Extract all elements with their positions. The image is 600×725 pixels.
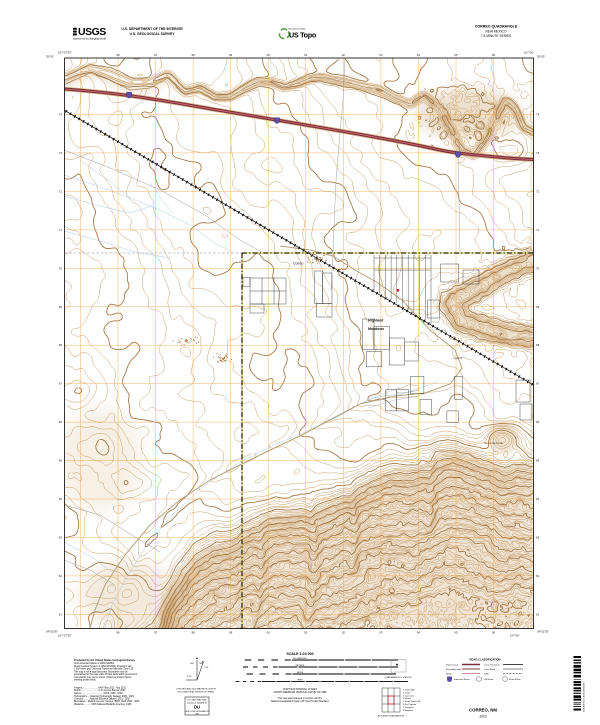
svg-text:34°52′30″: 34°52′30″ [537, 630, 549, 634]
svg-text:US Topo: US Topo [289, 31, 317, 40]
svg-text:Mesa Redondo: Mesa Redondo [484, 441, 503, 445]
svg-text:NORTH AMERICAN VERTICAL DATUM: NORTH AMERICAN VERTICAL DATUM OF 1988 [274, 691, 327, 694]
svg-text:35°00′: 35°00′ [46, 55, 54, 59]
svg-text:63: 63 [59, 536, 63, 540]
svg-text:00: 00 [267, 631, 271, 635]
svg-text:CORREO QUADRANGLE: CORREO QUADRANGLE [475, 24, 518, 28]
svg-text:66: 66 [536, 420, 540, 424]
svg-text:This map was produced to confo: This map was produced to conform with th… [278, 697, 323, 700]
svg-text:QUADRANGLE LOCATION: QUADRANGLE LOCATION [385, 676, 412, 679]
svg-text:00: 00 [267, 53, 271, 57]
svg-text:98: 98 [191, 53, 195, 57]
svg-text:0°19′: 0°19′ [187, 676, 192, 678]
svg-text:US Route: US Route [484, 678, 494, 681]
svg-text:34°52′30″: 34°52′30″ [46, 630, 58, 634]
svg-text:GN: GN [190, 663, 194, 665]
svg-text:4 Mesita: 4 Mesita [403, 697, 412, 700]
svg-text:Correo: Correo [293, 262, 303, 266]
svg-text:Secondary Hwy: Secondary Hwy [446, 668, 462, 671]
svg-text:6 Rio Paguate: 6 Rio Paguate [403, 703, 417, 706]
svg-text:67: 67 [536, 382, 540, 386]
svg-text:Produced by the United States: Produced by the United States Geological… [74, 658, 136, 662]
svg-text:61: 61 [536, 612, 540, 616]
svg-text:7°41′: 7°41′ [204, 667, 209, 669]
svg-text:SCALE 1:24 000: SCALE 1:24 000 [286, 652, 313, 656]
svg-text:13S: 13S [195, 713, 199, 715]
svg-text:107°00′: 107°00′ [510, 634, 520, 638]
svg-text:generalized for this map scale: generalized for this map scale. Private … [74, 673, 137, 676]
svg-text:entering private lands.: entering private lands. [74, 679, 97, 682]
svg-text:73: 73 [536, 151, 540, 155]
svg-text:03: 03 [379, 631, 383, 635]
svg-text:65: 65 [59, 459, 63, 463]
svg-text:reservations may not be shown.: reservations may not be shown. Obtain pe… [74, 676, 132, 679]
svg-text:70: 70 [536, 266, 540, 270]
svg-text:FEET: FEET [297, 679, 303, 681]
svg-text:4WD: 4WD [484, 673, 489, 675]
svg-text:04: 04 [417, 631, 421, 635]
svg-text:99: 99 [229, 53, 233, 57]
svg-text:CORREO, NM: CORREO, NM [469, 708, 497, 713]
svg-text:DU: DU [194, 705, 200, 710]
svg-text:107°00′: 107°00′ [524, 51, 534, 55]
svg-text:KILOMETERS: KILOMETERS [293, 658, 307, 660]
svg-text:5 South Garcia SE: 5 South Garcia SE [403, 700, 421, 703]
svg-text:Names.........................: Names...................................… [74, 693, 123, 695]
svg-text:World Geodetic System of 1984: World Geodetic System of 1984 (WGS84). P… [74, 665, 132, 668]
svg-text:North American Datum of 1983 (: North American Datum of 1983 (NAD83) [74, 662, 115, 665]
svg-text:65: 65 [536, 459, 540, 463]
svg-text:Highland: Highland [368, 319, 383, 323]
svg-text:Wetlands.............FWS Natio: Wetlands.............FWS National Wetlan… [74, 703, 132, 706]
svg-text:Local Connector: Local Connector [484, 663, 500, 666]
svg-text:1 000-meter grid: Universal Tr: 1 000-meter grid: Universal Transverse M… [74, 668, 134, 671]
svg-text:71: 71 [536, 228, 540, 232]
svg-text:U.S. DEPARTMENT OF THE INTERIO: U.S. DEPARTMENT OF THE INTERIOR [121, 27, 183, 31]
svg-text:NEW MEXICO: NEW MEXICO [486, 29, 507, 33]
svg-text:68: 68 [536, 343, 540, 347]
svg-text:NGA REF NO. USGSX24K00000: NGA REF NO. USGSX24K00000 [583, 682, 586, 712]
svg-text:2023: 2023 [479, 715, 486, 719]
svg-text:05: 05 [454, 631, 458, 635]
svg-text:06: 06 [492, 631, 496, 635]
svg-text:72: 72 [59, 189, 63, 193]
svg-text:96: 96 [116, 53, 120, 57]
svg-text:Roads.........................: Roads.............................U.S. C… [74, 689, 126, 692]
svg-text:8 Moquino: 8 Moquino [403, 710, 414, 712]
svg-text:7.5-MINUTE SERIES: 7.5-MINUTE SERIES [481, 34, 511, 38]
svg-text:Hydrography......National Hydr: Hydrography......National Hydrography Da… [74, 695, 135, 698]
svg-text:Meadows: Meadows [368, 327, 384, 331]
svg-text:97: 97 [154, 53, 158, 57]
svg-text:U.S. NATIONAL GRID: U.S. NATIONAL GRID [187, 699, 207, 702]
svg-text:97: 97 [154, 631, 158, 635]
svg-text:01: 01 [304, 53, 308, 57]
svg-text:National Geospatial Program US: National Geospatial Program US Topo Prod… [271, 700, 329, 703]
svg-text:State Route: State Route [509, 678, 521, 681]
svg-text:74: 74 [536, 113, 540, 117]
svg-text:7 Seboyeta: 7 Seboyeta [403, 706, 414, 709]
svg-text:UTM GRID AND 2023 MAGNETIC NOR: UTM GRID AND 2023 MAGNETIC NORTH [176, 688, 216, 691]
svg-text:Contours...........National El: Contours...........National Elevation Da… [74, 698, 131, 701]
svg-text:ADJOINING QUADRANGLES: ADJOINING QUADRANGLES [378, 715, 405, 718]
svg-text:03: 03 [379, 53, 383, 57]
svg-text:This map is not a legal docume: This map is not a legal document. Bounda… [74, 671, 128, 674]
svg-text:69: 69 [59, 305, 63, 309]
svg-text:1 Dalies NW: 1 Dalies NW [403, 690, 415, 692]
svg-text:MN: MN [200, 663, 204, 665]
svg-text:Boundaries....Multiple sources: Boundaries....Multiple sources; Census, … [74, 700, 140, 703]
svg-text:Laguna: Laguna [453, 356, 463, 360]
svg-text:04: 04 [417, 53, 421, 57]
svg-text:70: 70 [59, 266, 63, 270]
svg-text:62: 62 [536, 574, 540, 578]
svg-text:71: 71 [59, 228, 63, 232]
svg-text:Expressway: Expressway [446, 663, 459, 666]
svg-text:98: 98 [191, 631, 195, 635]
svg-text:3 Los Lunas: 3 Los Lunas [403, 695, 414, 697]
svg-text:science for a changing world: science for a changing world [73, 37, 106, 41]
svg-text:U.S. GEOLOGICAL SURVEY: U.S. GEOLOGICAL SURVEY [129, 32, 175, 36]
svg-text:Imagery.......................: Imagery..........................NAIP, M… [74, 687, 127, 690]
svg-text:96: 96 [116, 631, 120, 635]
svg-text:2 Dalies: 2 Dalies [403, 692, 411, 694]
svg-text:02: 02 [342, 53, 346, 57]
svg-text:05: 05 [454, 53, 458, 57]
svg-text:62: 62 [59, 574, 63, 578]
svg-text:64: 64 [536, 497, 540, 501]
svg-text:66: 66 [59, 420, 63, 424]
svg-text:02: 02 [342, 631, 346, 635]
svg-text:35°00′: 35°00′ [537, 55, 545, 59]
svg-text:01: 01 [304, 631, 308, 635]
svg-text:64: 64 [59, 497, 63, 501]
svg-text:63: 63 [536, 536, 540, 540]
svg-text:06: 06 [492, 53, 496, 57]
svg-text:107°07′30″: 107°07′30″ [58, 51, 72, 55]
svg-text:DECLINATION AT CENTER OF SHEET: DECLINATION AT CENTER OF SHEET [178, 690, 216, 693]
svg-text:107°07′30″: 107°07′30″ [58, 634, 72, 638]
svg-text:69: 69 [536, 305, 540, 309]
svg-text:Local Road: Local Road [484, 669, 496, 671]
svg-text:USGS: USGS [78, 26, 106, 38]
svg-text:74: 74 [59, 113, 63, 117]
svg-text:61: 61 [59, 612, 63, 616]
svg-text:Interstate Route: Interstate Route [454, 678, 470, 681]
svg-text:73: 73 [59, 151, 63, 155]
svg-text:MILES: MILES [297, 672, 304, 674]
svg-text:99: 99 [229, 631, 233, 635]
svg-text:72: 72 [536, 189, 540, 193]
svg-text:ROAD CLASSIFICATION: ROAD CLASSIFICATION [469, 658, 500, 662]
svg-text:67: 67 [59, 382, 63, 386]
svg-text:Ramp: Ramp [446, 673, 453, 675]
svg-text:METERS: METERS [296, 665, 305, 667]
svg-text:68: 68 [59, 343, 63, 347]
